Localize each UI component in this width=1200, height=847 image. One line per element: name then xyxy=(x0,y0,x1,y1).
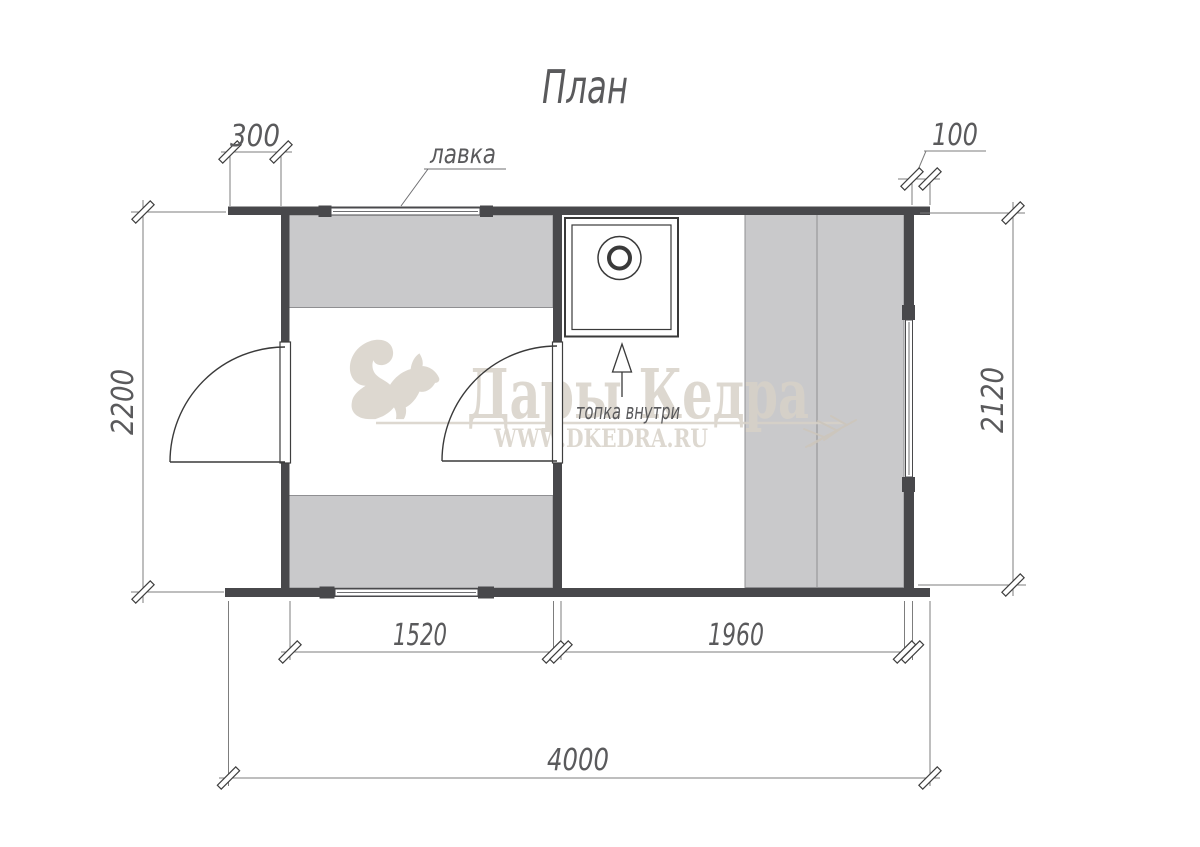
wall-left-lower xyxy=(281,462,290,597)
page-title: План xyxy=(542,60,628,114)
floor-plan-drawing: Дары Кедра WWW.DKEDRA.RU xyxy=(0,0,1200,847)
stove xyxy=(565,218,678,337)
squirrel-icon xyxy=(350,340,439,419)
bench-label: лавка xyxy=(429,139,496,170)
floor-plan-canvas: Дары Кедра WWW.DKEDRA.RU xyxy=(0,0,1200,847)
dim-porch-depth: 300 xyxy=(230,119,280,154)
wall-partition-upper xyxy=(553,207,562,343)
entrance-door-frame xyxy=(280,342,291,463)
interior-door-frame xyxy=(553,342,563,463)
post-top-window-right xyxy=(480,206,493,218)
entrance-door-swing-arc xyxy=(170,347,285,462)
dim-steam-room-width: 1520 xyxy=(393,618,447,653)
wall-right-lower xyxy=(904,477,914,597)
bench-top-left-room xyxy=(289,215,553,308)
dim-total-length: 4000 xyxy=(547,743,609,778)
stove-note-label: топка внутри xyxy=(576,400,680,425)
post-bottom-window-left xyxy=(320,587,335,599)
stove-body xyxy=(565,218,678,337)
post-bottom-window-right xyxy=(478,587,494,599)
watermark-website: WWW.DKEDRA.RU xyxy=(493,424,708,453)
post-right-window-bottom xyxy=(902,477,915,492)
dim-right-overhang: 100 xyxy=(932,118,978,153)
post-top-window-left xyxy=(319,206,332,218)
bench-bottom-left-room xyxy=(289,496,553,589)
wall-left-upper xyxy=(281,207,290,344)
dim-front-room-width: 1960 xyxy=(708,618,764,653)
dim-left-height: 2200 xyxy=(106,369,141,435)
wall-partition-lower xyxy=(553,462,562,597)
bench-label-leader xyxy=(401,169,428,206)
post-right-window-top xyxy=(902,305,915,320)
wall-right-upper xyxy=(904,207,914,321)
dim-right-height: 2120 xyxy=(976,367,1011,433)
bench-right-room-outer xyxy=(817,213,904,588)
